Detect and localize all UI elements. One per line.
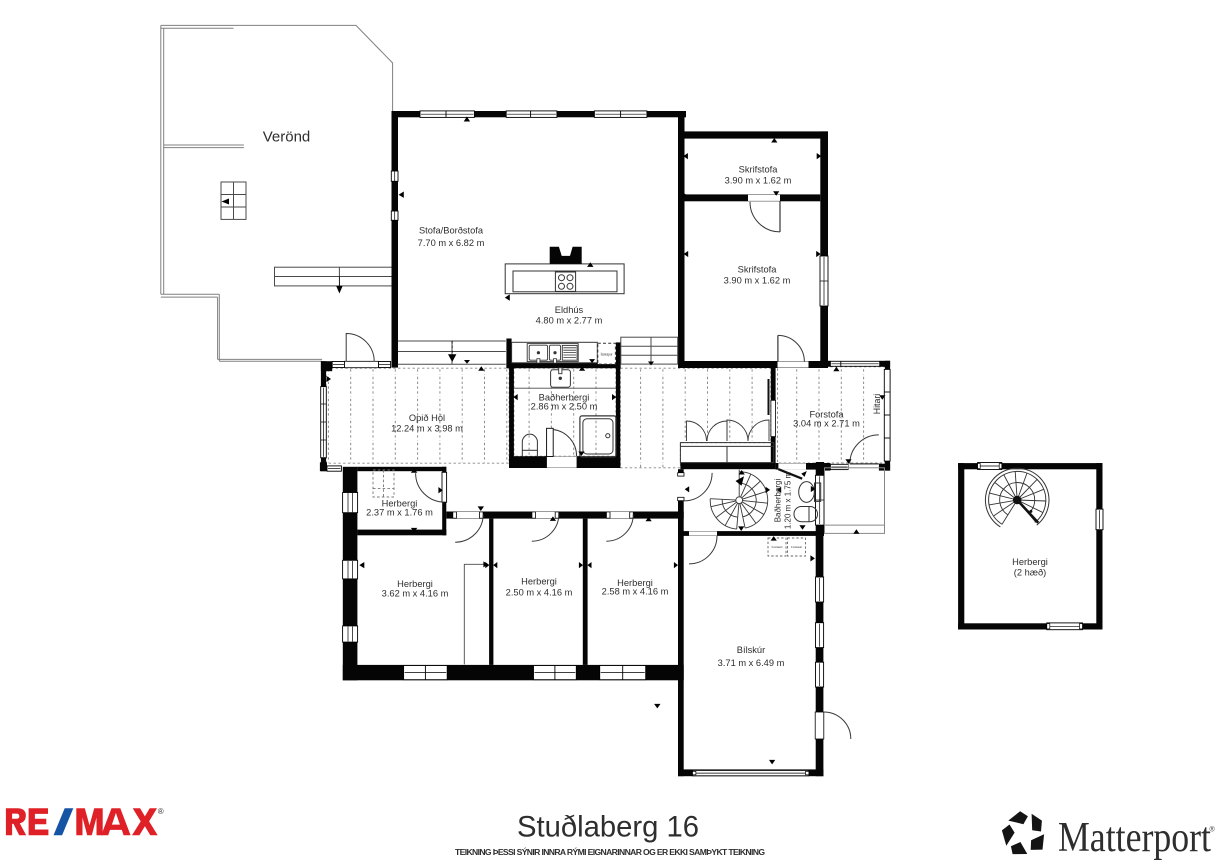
svg-text:12.24 m x 3.98 m: 12.24 m x 3.98 m	[391, 424, 463, 434]
svg-text:2.50 m x 4.16 m: 2.50 m x 4.16 m	[506, 588, 573, 598]
svg-text:2.58 m x 4.16 m: 2.58 m x 4.16 m	[602, 587, 669, 597]
svg-text:Þvottavél: Þvottavél	[791, 545, 802, 549]
svg-text:7.70 m x 6.82 m: 7.70 m x 6.82 m	[418, 238, 485, 248]
svg-text:2.37 m x 1.76 m: 2.37 m x 1.76 m	[366, 508, 433, 518]
svg-text:Stofa/Borðstofa: Stofa/Borðstofa	[419, 226, 484, 236]
svg-text:Verönd: Verönd	[263, 129, 311, 146]
svg-text:(2 hæð): (2 hæð)	[1014, 568, 1047, 578]
svg-text:Skrifstofa: Skrifstofa	[738, 265, 778, 275]
svg-text:Herbergi: Herbergi	[397, 579, 433, 589]
svg-text:Herbergi: Herbergi	[521, 577, 557, 587]
svg-text:Herbergi: Herbergi	[1012, 557, 1048, 567]
svg-text:3.90 m x 1.62 m: 3.90 m x 1.62 m	[724, 276, 791, 286]
svg-text:Skrifstofa: Skrifstofa	[739, 165, 779, 175]
svg-text:Hitari: Hitari	[872, 394, 882, 415]
svg-text:TEIKNING ÞESSI SÝNIR INNRA RÝM: TEIKNING ÞESSI SÝNIR INNRA RÝMI EIGNARIN…	[455, 846, 765, 857]
svg-text:Bílskúr: Bílskúr	[737, 645, 765, 655]
svg-text:3.04 m x 2.71 m: 3.04 m x 2.71 m	[793, 419, 860, 429]
svg-text:1.20 m x 1.75 m: 1.20 m x 1.75 m	[784, 471, 793, 529]
svg-text:4.80 m x 2.77 m: 4.80 m x 2.77 m	[536, 316, 603, 326]
svg-text:3.62 m x 4.16 m: 3.62 m x 4.16 m	[382, 589, 449, 599]
svg-text:3.90 m x 1.62 m: 3.90 m x 1.62 m	[725, 176, 792, 186]
svg-text:®: ®	[1210, 826, 1216, 834]
svg-text:Baðherbergi: Baðherbergi	[774, 478, 783, 522]
svg-text:Þvottavél: Þvottavél	[772, 545, 783, 549]
svg-text:2.86 m x 2.50 m: 2.86 m x 2.50 m	[531, 401, 598, 411]
svg-text:3.71 m x 6.49 m: 3.71 m x 6.49 m	[718, 658, 785, 668]
svg-text:®: ®	[158, 807, 164, 816]
svg-text:Stuðlaberg 16: Stuðlaberg 16	[517, 811, 699, 844]
svg-text:Matterport: Matterport	[1058, 815, 1211, 861]
svg-text:Ísskápur: Ísskápur	[601, 353, 614, 357]
svg-text:Opið Hól: Opið Hól	[409, 413, 445, 423]
svg-text:Eldhús: Eldhús	[555, 305, 584, 315]
